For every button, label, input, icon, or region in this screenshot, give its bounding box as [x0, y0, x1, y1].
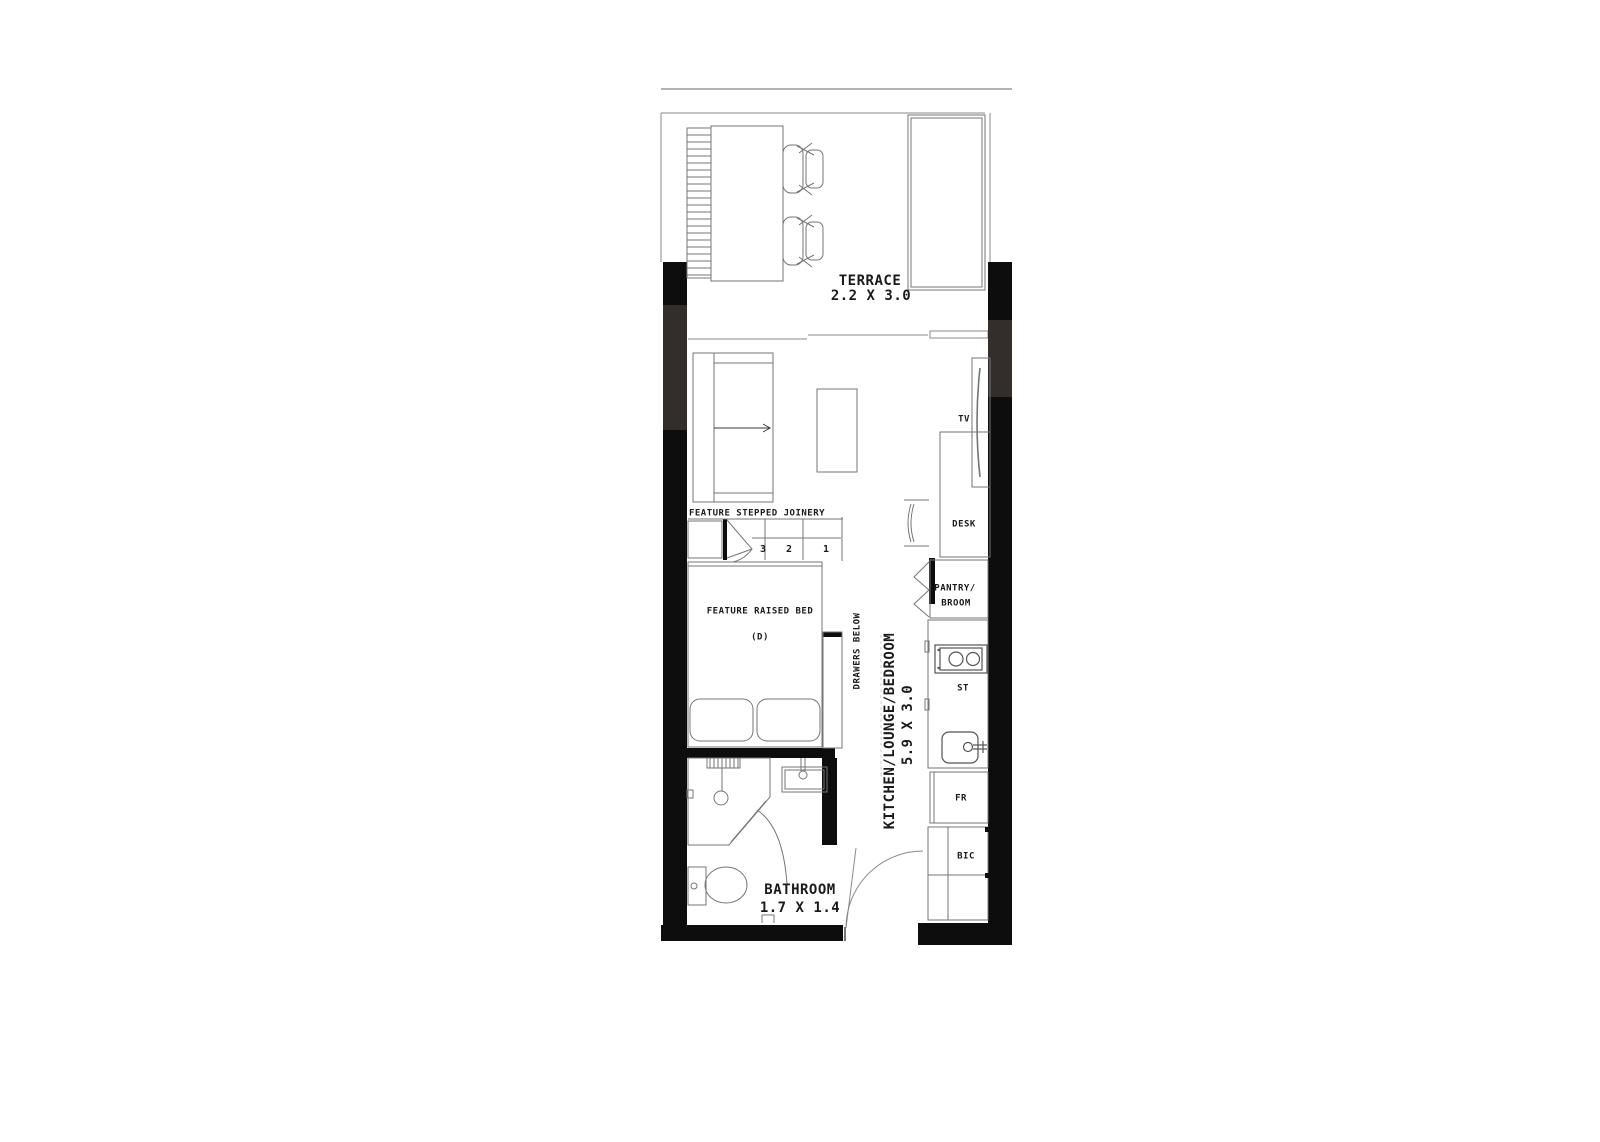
pillow-right — [757, 699, 820, 741]
flush-button — [691, 883, 697, 889]
wall-bottom-left — [661, 925, 843, 941]
shower-drain — [714, 791, 728, 805]
joinery-door-swing — [733, 549, 752, 562]
built-in-cupboard — [928, 827, 989, 920]
bathroom-basin — [782, 758, 827, 792]
pantry-door-upper — [914, 562, 929, 590]
label-bic: BIC — [957, 853, 975, 862]
label-step-1: 1 — [823, 545, 829, 555]
window-bands — [663, 305, 1012, 430]
label-bathroom-dims: 1.7 X 1.4 — [760, 901, 840, 915]
shower-channel — [707, 758, 740, 768]
label-bathroom: BATHROOM — [764, 883, 835, 897]
label-pantry: PANTRY/ — [934, 585, 975, 594]
label-bed-type: (D) — [751, 634, 769, 643]
entry-door-leaf — [846, 848, 856, 928]
entry-door — [846, 848, 923, 928]
label-drawers-below: DRAWERS BELOW — [854, 613, 863, 690]
wall-bottom-right — [918, 923, 1012, 945]
shower-door-swing — [757, 810, 787, 884]
joinery-door — [727, 520, 752, 558]
label-broom: BROOM — [941, 600, 971, 609]
raised-bed — [688, 562, 822, 747]
label-desk: DESK — [952, 521, 976, 530]
basin-tap — [799, 771, 807, 779]
entry-door-swing — [846, 851, 923, 928]
sliding-door-panel — [930, 331, 988, 338]
tv-unit — [972, 358, 990, 487]
terrace-chair-2 — [783, 215, 823, 267]
terrace-planter — [908, 115, 985, 290]
joinery-cupboard — [688, 521, 722, 558]
label-terrace-dims: 2.2 X 3.0 — [831, 289, 911, 303]
desk-chair — [904, 500, 929, 546]
window-right — [988, 320, 1012, 397]
terrace-chair-1 — [783, 143, 823, 195]
label-tv: TV — [958, 416, 970, 425]
label-step-3: 3 — [760, 545, 766, 555]
sofa — [693, 353, 773, 502]
label-stepped-joinery: FEATURE STEPPED JOINERY — [689, 510, 825, 519]
coffee-table — [817, 389, 857, 472]
bed-side-panel — [823, 632, 842, 748]
label-step-2: 2 — [786, 545, 792, 555]
terrace-table — [687, 126, 783, 281]
tv-screen — [977, 368, 980, 477]
label-living-room: KITCHEN/LOUNGE/BEDROOM — [883, 633, 897, 829]
pillow-left — [690, 699, 753, 741]
sink-tap — [964, 743, 973, 752]
floor-plan-drawing — [0, 0, 1600, 1142]
burner-2 — [967, 653, 980, 666]
label-raised-bed: FEATURE RAISED BED — [707, 608, 814, 617]
label-living-dims: 5.9 X 3.0 — [901, 685, 915, 765]
window-left — [663, 305, 687, 430]
pantry-door-lower — [914, 590, 929, 617]
joinery-divider-wall — [723, 519, 727, 560]
shower — [687, 758, 787, 884]
entry-door-jamb — [844, 927, 846, 941]
label-fridge: FR — [955, 795, 967, 804]
label-terrace: TERRACE — [839, 274, 902, 288]
stove — [935, 645, 987, 673]
terrace-threshold — [688, 331, 988, 339]
toilet — [688, 867, 747, 905]
kitchen-sink — [942, 732, 987, 763]
door-stop-marker — [762, 915, 774, 923]
floor-plan: TERRACE 2.2 X 3.0 TV DESK PANTRY/ BROOM … — [0, 0, 1600, 1142]
wall-bathroom-top — [687, 748, 835, 758]
toilet-bowl — [705, 867, 747, 903]
burner-1 — [949, 652, 963, 666]
desk — [940, 432, 990, 557]
bed-panel-top-edge — [823, 632, 842, 637]
stepped-joinery — [688, 517, 843, 562]
terrace-louvre-bench — [687, 128, 711, 278]
label-stove: ST — [957, 685, 969, 694]
